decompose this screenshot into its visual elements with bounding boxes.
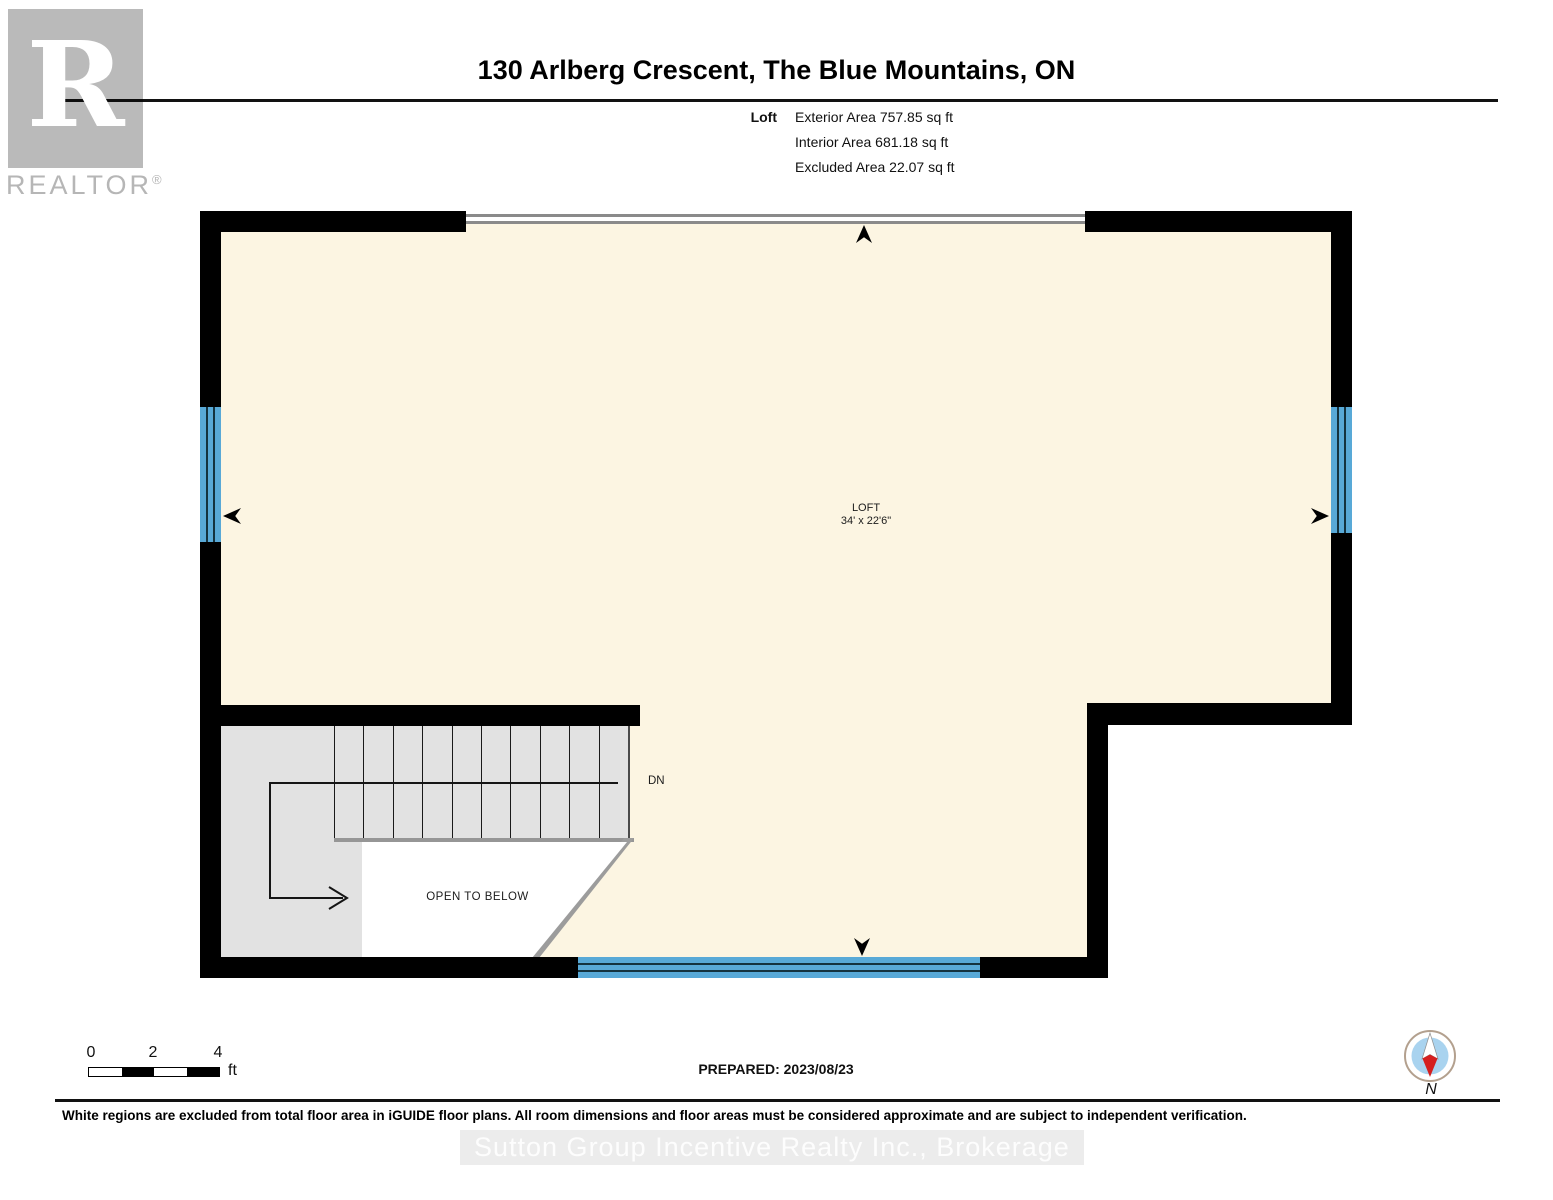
scale-tick-4: 4 (210, 1044, 226, 1062)
wall-left-upper (200, 211, 221, 407)
wall-bottom-left (200, 957, 578, 978)
scale-tick-0: 0 (83, 1044, 99, 1062)
room-label: LOFT 34' x 22'6" (796, 502, 936, 528)
scale-unit: ft (228, 1062, 237, 1080)
room-dimensions: 34' x 22'6" (796, 515, 936, 528)
disclaimer-text: White regions are excluded from total fl… (62, 1108, 1247, 1123)
wall-left-lower (200, 542, 221, 978)
excluded-area: Excluded Area 22.07 sq ft (795, 159, 955, 176)
loft-floor-upper (221, 224, 1331, 703)
wall-step-horizontal (1087, 703, 1352, 725)
page-title: 130 Arlberg Crescent, The Blue Mountains… (0, 55, 1553, 86)
stairs-dn-label: DN (648, 775, 665, 787)
window-pane-line (206, 407, 208, 542)
brokerage-watermark: Sutton Group Incentive Realty Inc., Brok… (460, 1130, 1084, 1165)
window-left (200, 407, 221, 542)
compass-icon (1402, 1028, 1458, 1084)
area-lines: Exterior Area 757.85 sq ft Interior Area… (795, 109, 955, 184)
window-pane-line (213, 407, 215, 542)
window-pane-line (578, 970, 980, 972)
scale-bar (88, 1067, 220, 1077)
area-summary: Loft Exterior Area 757.85 sq ft Interior… (650, 109, 955, 184)
realtor-wordmark: REALTOR® (6, 170, 162, 201)
wall-top-left (200, 211, 466, 232)
realtor-logo: R (8, 9, 143, 168)
window-right (1331, 407, 1352, 533)
interior-area: Interior Area 681.18 sq ft (795, 134, 955, 151)
window-pane-line (578, 963, 980, 965)
wall-top-right (1085, 211, 1352, 232)
wall-bottom-right (980, 957, 1108, 978)
title-divider (48, 99, 1498, 102)
stair-wall (221, 705, 640, 726)
wall-top-knee (466, 214, 1085, 224)
prepared-date: PREPARED: 2023/08/23 (576, 1061, 976, 1077)
window-bottom (578, 957, 980, 978)
wall-step-vertical (1087, 703, 1108, 978)
floor-label: Loft (650, 109, 777, 184)
scale-tick-2: 2 (145, 1044, 161, 1062)
wall-right-upper (1331, 211, 1352, 407)
window-pane-line (1337, 407, 1339, 533)
wall-right-lower (1331, 533, 1352, 725)
registered-mark: ® (152, 172, 162, 187)
room-name: LOFT (796, 502, 936, 515)
open-to-below-label: OPEN TO BELOW (400, 891, 555, 903)
stair-down-arrow (265, 779, 365, 914)
window-pane-line (1344, 407, 1346, 533)
floor-plan-page: R REALTOR® 130 Arlberg Crescent, The Blu… (0, 0, 1553, 1200)
exterior-area: Exterior Area 757.85 sq ft (795, 109, 955, 126)
footer-divider (55, 1099, 1500, 1102)
compass-north-label: N (1419, 1081, 1443, 1099)
